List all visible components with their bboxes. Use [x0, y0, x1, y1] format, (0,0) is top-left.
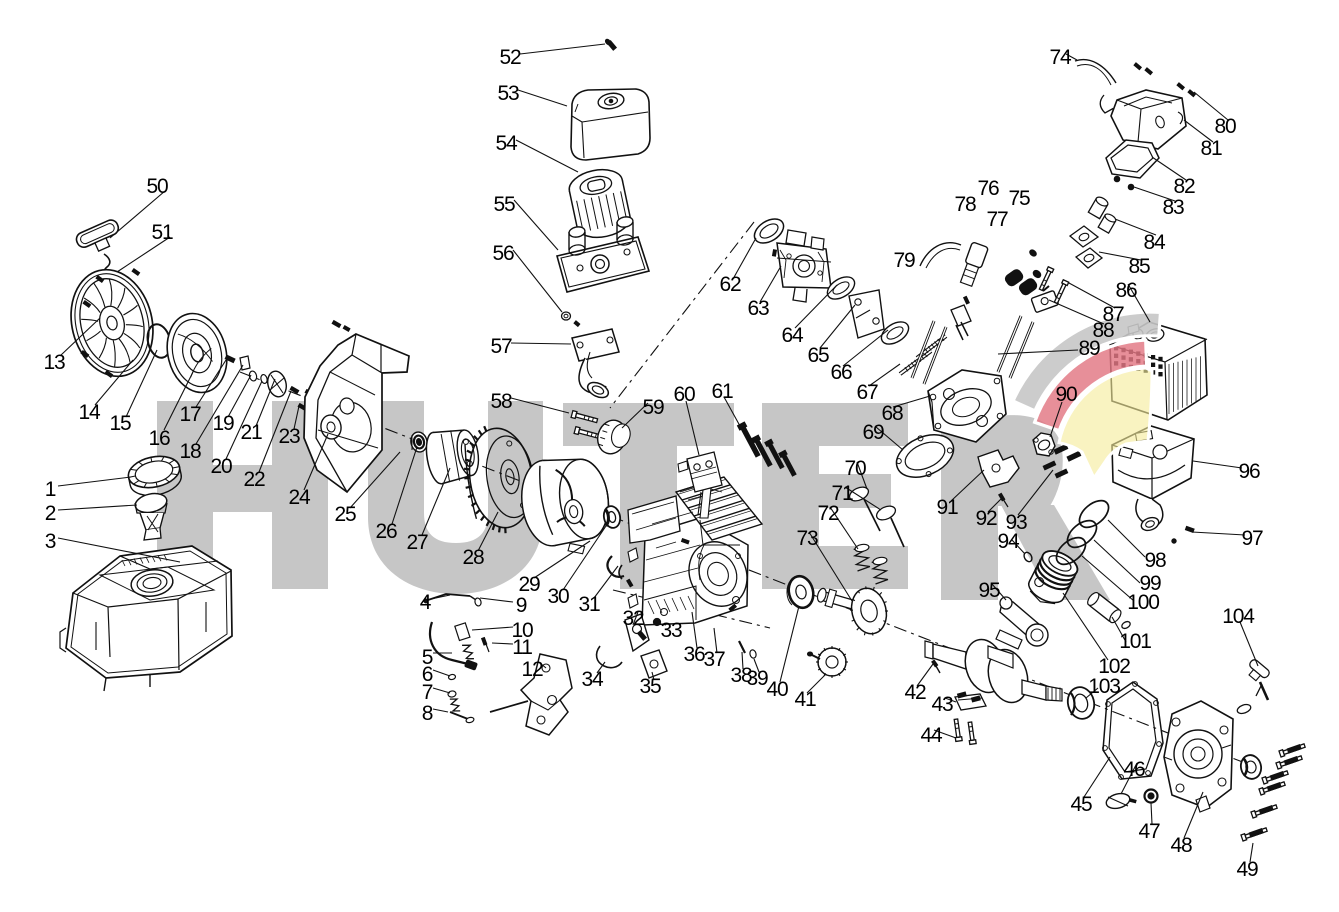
- svg-text:3: 3: [45, 530, 56, 553]
- svg-text:82: 82: [1174, 175, 1195, 198]
- svg-text:15: 15: [110, 412, 131, 435]
- svg-text:26: 26: [376, 520, 397, 543]
- svg-text:81: 81: [1201, 137, 1222, 160]
- svg-text:23: 23: [279, 425, 300, 448]
- svg-text:54: 54: [496, 132, 518, 155]
- svg-text:101: 101: [1119, 630, 1151, 653]
- svg-text:14: 14: [79, 401, 101, 424]
- svg-text:86: 86: [1116, 279, 1137, 302]
- svg-text:29: 29: [519, 573, 540, 596]
- svg-text:95: 95: [979, 579, 1000, 602]
- svg-text:11: 11: [512, 636, 532, 659]
- svg-text:24: 24: [289, 486, 311, 509]
- svg-text:60: 60: [674, 383, 695, 406]
- svg-text:61: 61: [712, 380, 733, 403]
- svg-text:48: 48: [1171, 834, 1192, 857]
- svg-text:58: 58: [491, 390, 512, 413]
- svg-text:63: 63: [748, 297, 769, 320]
- svg-text:96: 96: [1239, 460, 1260, 483]
- svg-text:32: 32: [623, 607, 644, 630]
- svg-text:16: 16: [149, 427, 170, 450]
- svg-text:65: 65: [808, 344, 829, 367]
- svg-text:8: 8: [422, 702, 433, 725]
- svg-text:84: 84: [1144, 231, 1166, 254]
- svg-text:59: 59: [643, 396, 664, 419]
- svg-text:91: 91: [937, 496, 958, 519]
- svg-text:18: 18: [180, 440, 201, 463]
- svg-text:19: 19: [213, 412, 234, 435]
- svg-text:36: 36: [684, 643, 705, 666]
- svg-text:7: 7: [422, 681, 433, 704]
- svg-text:67: 67: [857, 381, 878, 404]
- svg-text:42: 42: [905, 681, 926, 704]
- svg-text:12: 12: [522, 658, 543, 681]
- svg-text:35: 35: [640, 675, 661, 698]
- svg-text:64: 64: [782, 324, 804, 347]
- svg-text:49: 49: [1237, 858, 1258, 881]
- svg-text:83: 83: [1163, 196, 1184, 219]
- svg-text:53: 53: [498, 82, 519, 105]
- svg-text:27: 27: [407, 531, 428, 554]
- svg-text:44: 44: [921, 724, 943, 747]
- svg-text:2: 2: [45, 502, 56, 525]
- svg-text:33: 33: [661, 619, 682, 642]
- svg-text:37: 37: [704, 648, 725, 671]
- svg-text:66: 66: [831, 361, 852, 384]
- svg-text:43: 43: [932, 693, 953, 716]
- svg-text:74: 74: [1050, 46, 1072, 69]
- svg-text:73: 73: [797, 527, 818, 550]
- svg-text:90: 90: [1056, 383, 1077, 406]
- svg-text:17: 17: [180, 403, 201, 426]
- svg-text:1: 1: [45, 478, 56, 501]
- svg-text:40: 40: [767, 678, 788, 701]
- svg-text:39: 39: [747, 667, 768, 690]
- svg-text:104: 104: [1222, 605, 1255, 628]
- svg-text:46: 46: [1124, 758, 1145, 781]
- svg-text:98: 98: [1145, 549, 1166, 572]
- svg-text:70: 70: [845, 457, 866, 480]
- svg-text:97: 97: [1242, 527, 1263, 550]
- svg-text:92: 92: [976, 507, 997, 530]
- svg-text:69: 69: [863, 421, 884, 444]
- svg-text:85: 85: [1129, 255, 1150, 278]
- svg-text:94: 94: [998, 530, 1020, 553]
- svg-text:75: 75: [1009, 187, 1030, 210]
- svg-text:45: 45: [1071, 793, 1092, 816]
- svg-text:47: 47: [1139, 820, 1160, 843]
- svg-text:25: 25: [335, 503, 356, 526]
- svg-text:50: 50: [147, 175, 168, 198]
- svg-text:4: 4: [420, 591, 432, 614]
- svg-text:79: 79: [894, 249, 915, 272]
- svg-text:28: 28: [463, 546, 484, 569]
- svg-text:55: 55: [494, 193, 515, 216]
- svg-text:68: 68: [882, 402, 903, 425]
- svg-text:80: 80: [1215, 115, 1236, 138]
- svg-text:103: 103: [1088, 675, 1120, 698]
- svg-text:31: 31: [579, 593, 600, 616]
- svg-text:41: 41: [795, 688, 816, 711]
- svg-text:13: 13: [44, 351, 65, 374]
- svg-text:30: 30: [548, 585, 569, 608]
- svg-text:20: 20: [211, 455, 232, 478]
- svg-text:56: 56: [493, 242, 514, 265]
- svg-text:21: 21: [241, 421, 262, 444]
- svg-text:62: 62: [720, 273, 741, 296]
- svg-text:89: 89: [1079, 337, 1100, 360]
- svg-text:34: 34: [582, 668, 604, 691]
- svg-text:77: 77: [987, 208, 1008, 231]
- svg-text:51: 51: [152, 221, 173, 244]
- svg-text:78: 78: [955, 193, 976, 216]
- svg-text:72: 72: [818, 502, 839, 525]
- svg-text:52: 52: [500, 46, 521, 69]
- svg-text:100: 100: [1127, 591, 1159, 614]
- svg-text:9: 9: [516, 594, 527, 617]
- svg-text:22: 22: [244, 468, 265, 491]
- svg-text:76: 76: [978, 177, 999, 200]
- svg-text:57: 57: [491, 335, 512, 358]
